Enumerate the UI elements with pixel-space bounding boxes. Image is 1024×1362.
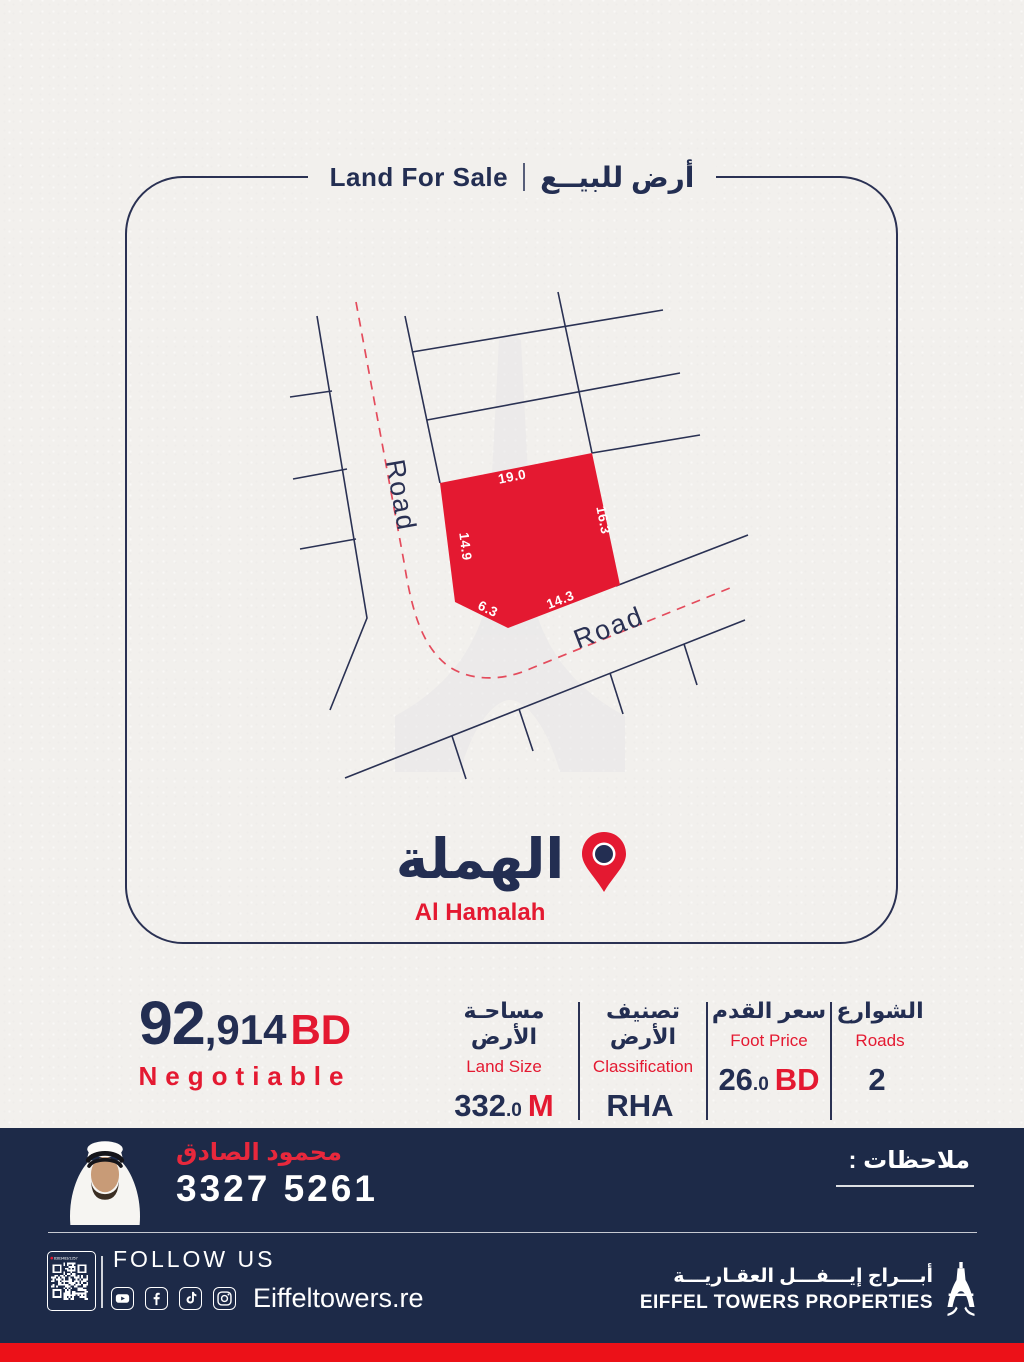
details-row: مساحـة الأرض Land Size 332.0M تصنيف الأر… bbox=[430, 998, 928, 1124]
detail-roads: الشوارع Roads 2 bbox=[832, 998, 928, 1124]
website-link[interactable]: Eiffeltowers.re bbox=[253, 1283, 424, 1314]
map-pin-icon bbox=[580, 830, 628, 894]
detail-title-ar: تصنيف الأرض bbox=[580, 998, 706, 1050]
agent-name: محمود الصادق bbox=[176, 1138, 342, 1167]
band-divider bbox=[48, 1232, 977, 1233]
price-block: 92,914BD Negotiable bbox=[132, 988, 358, 1092]
location-block: الهملة Al Hamalah bbox=[0, 832, 1024, 927]
flyer-page: 19.0 16.3 14.3 6.3 14.9 Road Road Land F… bbox=[0, 0, 1024, 1362]
instagram-icon bbox=[215, 1289, 234, 1308]
detail-title-ar: سعر القدم bbox=[708, 998, 830, 1024]
detail-title-ar: الشوارع bbox=[832, 998, 928, 1024]
detail-title-en: Foot Price bbox=[708, 1031, 830, 1051]
agent-photo bbox=[58, 1137, 152, 1225]
price-negotiable: Negotiable bbox=[132, 1061, 358, 1092]
facebook-icon bbox=[147, 1289, 166, 1308]
qr-label-text: 8363483/1257 bbox=[54, 1257, 78, 1261]
location-name-english: Al Hamalah bbox=[415, 899, 546, 927]
detail-classification: تصنيف الأرض Classification RHA bbox=[580, 998, 706, 1124]
instagram-button[interactable] bbox=[213, 1287, 236, 1310]
price-rest: ,914 bbox=[205, 1006, 287, 1053]
qr-code[interactable]: 8363483/1257 bbox=[47, 1251, 96, 1311]
price-currency: BD bbox=[290, 1006, 351, 1053]
price-main: 92 bbox=[139, 989, 205, 1057]
detail-land-size: مساحـة الأرض Land Size 332.0M bbox=[430, 998, 578, 1124]
qr-label-dot bbox=[50, 1257, 53, 1260]
header: Land For Sale أرض للبيــع bbox=[0, 156, 1024, 198]
facebook-button[interactable] bbox=[145, 1287, 168, 1310]
bottom-red-strip bbox=[0, 1343, 1024, 1362]
detail-title-ar: مساحـة الأرض bbox=[430, 998, 578, 1050]
tiktok-button[interactable] bbox=[179, 1287, 202, 1310]
social-row: Eiffeltowers.re bbox=[111, 1283, 424, 1314]
title-english: Land For Sale bbox=[330, 162, 508, 193]
detail-foot-price: سعر القدم Foot Price 26.0BD bbox=[708, 998, 830, 1124]
footer-divider bbox=[101, 1256, 103, 1308]
title-arabic: أرض للبيــع bbox=[540, 161, 694, 194]
title-separator bbox=[523, 163, 525, 191]
follow-us-label: FOLLOW US bbox=[113, 1246, 275, 1273]
brand-block: أبـــراج إيـــفـــل العقـاريـــة EIFFEL … bbox=[640, 1260, 979, 1318]
brand-name-arabic: أبـــراج إيـــفـــل العقـاريـــة bbox=[640, 1265, 933, 1288]
brand-name-english: EIFFEL TOWERS PROPERTIES bbox=[640, 1292, 933, 1314]
detail-title-en: Classification bbox=[580, 1057, 706, 1077]
youtube-icon bbox=[113, 1289, 132, 1308]
brand-eiffel-tower-icon bbox=[943, 1260, 979, 1318]
youtube-button[interactable] bbox=[111, 1287, 134, 1310]
detail-title-en: Roads bbox=[832, 1031, 928, 1051]
agent-phone[interactable]: 3327 5261 bbox=[176, 1168, 378, 1210]
location-name-arabic: الهملة bbox=[396, 832, 565, 887]
notes-label: ملاحظات : bbox=[836, 1146, 974, 1187]
detail-title-en: Land Size bbox=[430, 1057, 578, 1077]
tiktok-icon bbox=[181, 1289, 200, 1308]
